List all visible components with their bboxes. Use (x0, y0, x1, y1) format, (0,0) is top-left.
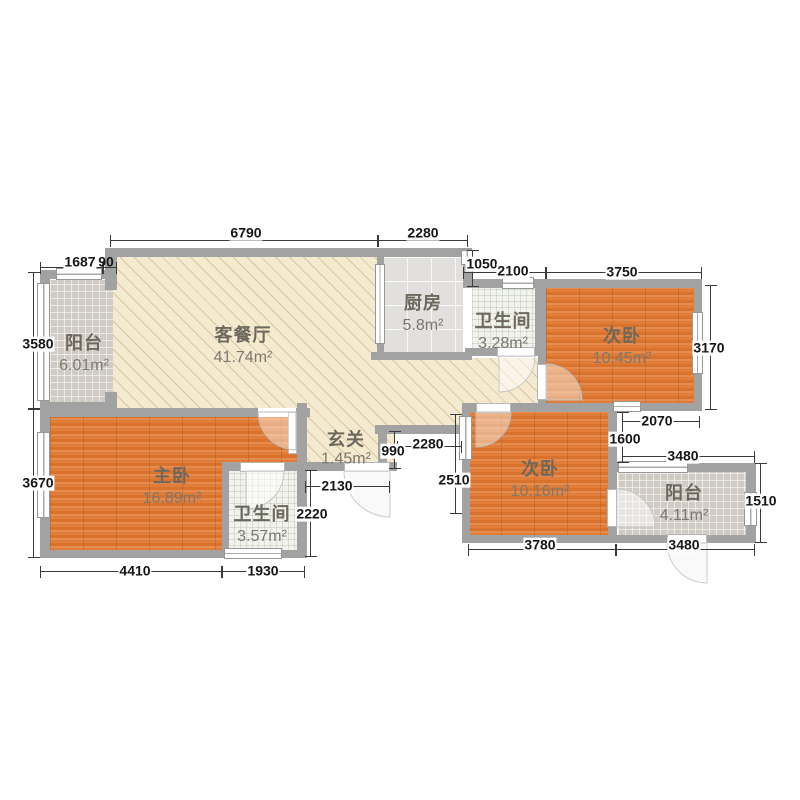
dim-label-1050: 1050 (465, 257, 498, 272)
dim-label-2070: 2070 (640, 414, 673, 429)
room-area: 4.11m² (660, 507, 709, 525)
dim-label-2130: 2130 (320, 479, 353, 494)
wall (371, 352, 472, 360)
room-name: 卫生间 (475, 307, 532, 333)
room-area: 5.8m² (403, 317, 444, 335)
dim-label-6790: 6790 (229, 226, 262, 241)
dim-label-2280-top: 2280 (406, 226, 439, 241)
room-area: 3.28m² (475, 335, 532, 353)
dim-label-90: 90 (97, 255, 115, 270)
room-area: 10.16m² (511, 483, 570, 501)
dim-label-1687: 1687 (63, 255, 96, 270)
dim-label-1930: 1930 (246, 564, 279, 579)
wall (535, 287, 546, 350)
room-label-master: 主卧 16.89m² (143, 462, 202, 508)
door (240, 462, 285, 472)
dim-label-1600: 1600 (608, 432, 641, 447)
room-name: 客餐厅 (214, 321, 273, 347)
dim-label-3580: 3580 (21, 337, 54, 352)
room-name: 玄关 (321, 426, 371, 452)
wall (463, 279, 702, 288)
room-label-bed-right-top: 次卧 10.45m² (593, 322, 652, 368)
door (607, 489, 617, 527)
dim-label-1510: 1510 (744, 494, 777, 509)
room-name: 次卧 (593, 322, 652, 348)
room-label-bath-master: 卫生间 3.57m² (234, 500, 291, 546)
room-area: 16.89m² (143, 490, 202, 508)
dim-label-3780: 3780 (523, 538, 556, 553)
room-label-bed-right-bottom: 次卧 10.16m² (511, 455, 570, 501)
room-label-kitchen: 厨房 5.8m² (403, 289, 444, 335)
room-area: 6.01m² (59, 357, 109, 375)
room-area: 41.74m² (214, 349, 273, 367)
dim-label-2100: 2100 (496, 264, 529, 279)
room-label-balcony-right: 阳台 4.11m² (660, 479, 709, 525)
window (37, 283, 50, 338)
room-name: 卫生间 (234, 500, 291, 526)
window (613, 401, 641, 412)
door (537, 364, 547, 400)
dim-label-990: 990 (380, 444, 405, 459)
window (502, 277, 534, 289)
room-label-bath-top: 卫生间 3.28m² (475, 307, 532, 353)
room-label-living: 客餐厅 41.74m² (214, 321, 273, 367)
dim-label-2510: 2510 (437, 473, 470, 488)
dim-label-3480-top: 3480 (666, 449, 699, 464)
window (56, 268, 102, 280)
room-area: 3.57m² (234, 528, 291, 546)
room-area: 10.45m² (593, 350, 652, 368)
floor-plan: 6790 2280 1687 90 1050 2100 3750 3580 36… (0, 0, 800, 800)
window (375, 264, 385, 344)
room-label-hall: 玄关 1.45m² (321, 426, 371, 469)
room-name: 厨房 (403, 289, 444, 315)
room-name: 主卧 (143, 462, 202, 488)
dim-label-2280-mid: 2280 (411, 437, 444, 452)
wall (222, 462, 229, 550)
dim-label-4410: 4410 (118, 564, 151, 579)
wall (105, 248, 472, 257)
room-area: 1.45m² (321, 451, 371, 469)
dim-label-3750: 3750 (605, 265, 638, 280)
room-name: 次卧 (511, 455, 570, 481)
room-name: 阳台 (59, 329, 109, 355)
room-name: 阳台 (660, 479, 709, 505)
window (224, 548, 282, 559)
dimension-line (455, 414, 456, 514)
room-label-balcony-left: 阳台 6.01m² (59, 329, 109, 375)
dim-label-2220: 2220 (295, 507, 328, 522)
dim-label-3480-bottom: 3480 (667, 538, 700, 553)
door (476, 403, 511, 413)
door-leaf (288, 412, 297, 454)
dim-label-3670: 3670 (21, 476, 54, 491)
wall (297, 403, 307, 470)
dim-label-3170: 3170 (692, 341, 725, 356)
window (459, 416, 472, 460)
